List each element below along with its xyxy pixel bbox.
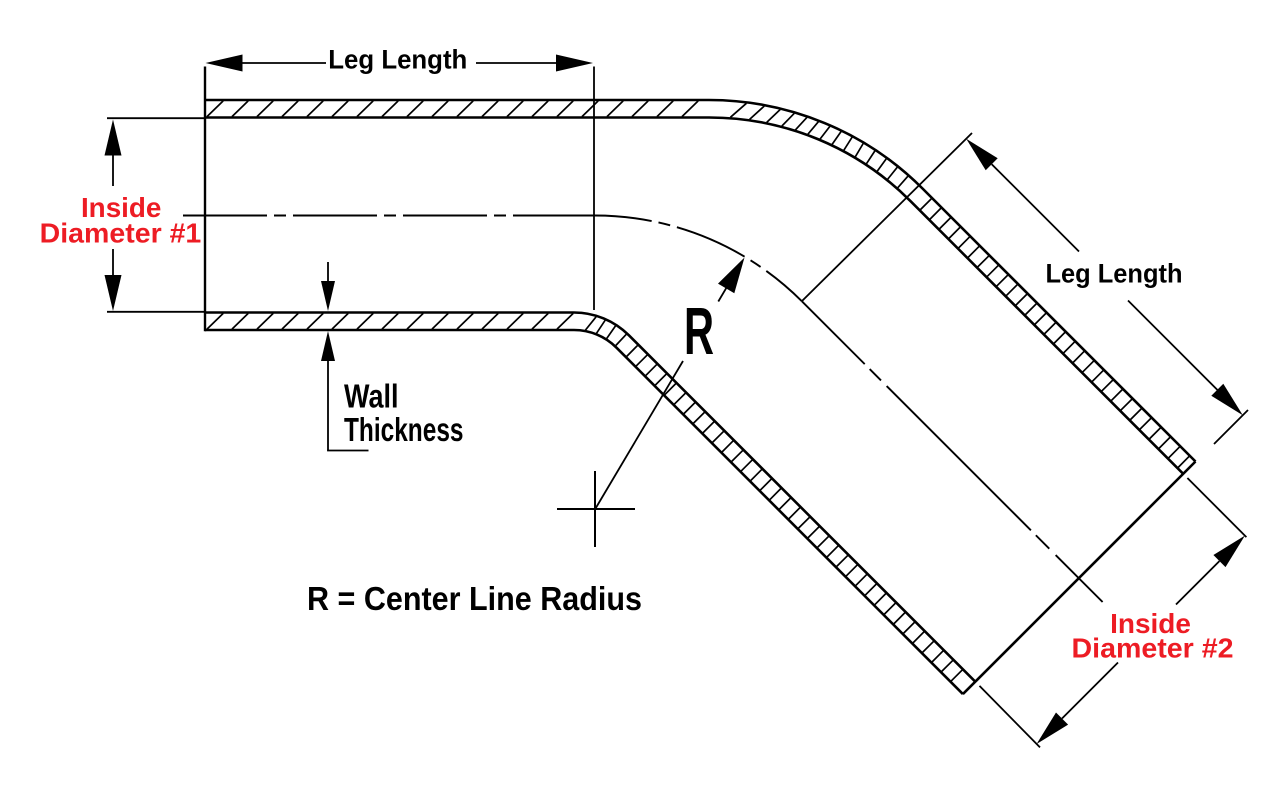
svg-text:Thickness: Thickness [344, 411, 464, 448]
svg-text:Diameter #2: Diameter #2 [1072, 633, 1234, 664]
svg-text:Leg Length: Leg Length [1046, 258, 1183, 288]
svg-text:R = Center Line Radius: R = Center Line Radius [307, 580, 642, 617]
svg-text:Diameter #1: Diameter #1 [40, 218, 202, 249]
svg-text:Wall: Wall [344, 378, 399, 415]
svg-text:Leg Length: Leg Length [328, 44, 467, 74]
svg-text:R: R [684, 294, 714, 369]
